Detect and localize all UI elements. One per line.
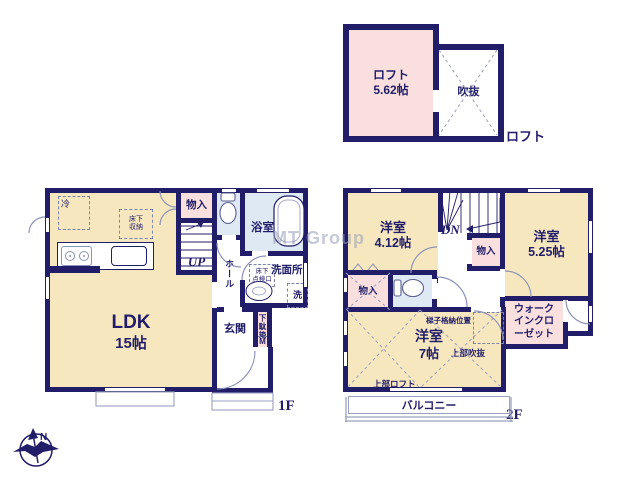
stairs-1f: UP	[176, 218, 217, 275]
bedroom-7-name: 洋室	[396, 328, 462, 346]
window-ldk-left	[45, 276, 50, 300]
refrigerator-label: 冷	[61, 199, 70, 209]
closet-2f-b-label: 物入	[358, 286, 377, 298]
compass-north-label: N	[40, 432, 47, 443]
floor-label-1f: 1F	[278, 398, 295, 415]
window-room7-west-a	[343, 320, 348, 336]
loft-room: ロフト 5.62帖	[343, 24, 439, 142]
bedroom-7: 洋室 7帖 梯子格納位置 上部吹抜 上部ロフト	[343, 307, 506, 392]
loft-void-opening	[433, 90, 439, 112]
loft-room-label: ロフト 5.62帖	[349, 30, 433, 136]
bathroom-label: 浴室	[251, 219, 274, 235]
meter-box: M	[258, 336, 267, 346]
bedroom-412-size: 4.12帖	[375, 236, 412, 252]
entrance-1f: 玄関	[212, 307, 258, 352]
opening-ldk-hall	[212, 282, 217, 308]
refrigerator-space: 冷	[58, 196, 90, 230]
loft-room-size: 5.62帖	[373, 83, 408, 98]
floor-plan-canvas: ロフト 5.62帖 吹抜 ロフト LDK 15帖 冷 床下 収納 物入 UP ホ…	[0, 0, 640, 480]
opening-525-door	[500, 269, 505, 297]
bedroom-525-label: 洋室 5.25帖	[505, 193, 588, 296]
upper-void-note: 上部吹抜	[451, 347, 485, 359]
window-bath-north	[256, 188, 290, 193]
underfloor-hatch: 床下 点検口	[249, 264, 275, 287]
window-toilet-1f	[221, 188, 237, 193]
porch-1f	[212, 347, 273, 393]
loft-room-name: ロフト	[373, 68, 409, 83]
walk-in-closet: ウォークインクローゼット	[500, 296, 568, 349]
hall-1f-label: ホール	[223, 259, 234, 289]
kitchen-half-wall	[45, 266, 100, 273]
window-nook-east	[588, 305, 593, 323]
wic-label-wrap: ウォークインクローゼット	[505, 301, 563, 344]
floor-label-2f: 2F	[506, 407, 523, 424]
ldk-size: 15帖	[115, 335, 147, 354]
opening-ladder-area	[471, 307, 501, 312]
entrance-label: 玄関	[224, 323, 246, 337]
washroom-label: 洗面所	[271, 262, 303, 277]
ladder-position-note: 梯子格納位置	[426, 315, 471, 326]
entry-steps	[96, 392, 273, 410]
window-525-north	[527, 188, 561, 193]
opening-toilet-2f-door	[432, 279, 437, 299]
window-525-east	[588, 220, 593, 254]
opening-hall-entrance	[224, 307, 242, 312]
closet-2f-b-wrap: 物入	[348, 275, 388, 308]
bedroom-525-size: 5.25帖	[528, 245, 565, 261]
opening-front-door	[218, 347, 250, 352]
loft-void-label-wrap: 吹抜	[439, 50, 498, 136]
loft-void-label: 吹抜	[458, 86, 480, 100]
watermark: MT Group	[272, 228, 365, 249]
opening-412-door	[438, 247, 443, 275]
balcony-label: バルコニー	[402, 397, 457, 413]
window-closet-b-west	[343, 277, 348, 293]
washroom-1f: 洗面所 床下 点検口 洗	[240, 251, 308, 308]
closet-2f-a-label: 物入	[476, 246, 495, 258]
entrance-label-wrap: 玄関	[217, 312, 253, 347]
window-room7-west-b	[343, 351, 348, 367]
balcony: バルコニー	[348, 396, 510, 414]
ladder-storage-box	[473, 312, 504, 344]
stairs-up-label: UP	[181, 254, 212, 270]
window-ldk-south	[104, 387, 166, 392]
ldk-name: LDK	[111, 311, 150, 335]
closet-1f-label: 物入	[186, 199, 207, 212]
bedroom-525: 洋室 5.25帖	[500, 188, 593, 301]
opening-closet-2f-a	[467, 240, 472, 264]
closet-2f-a-wrap: 物入	[472, 238, 500, 266]
window-412-north	[370, 188, 402, 193]
hall-1f-label-wrap: ホール	[217, 240, 240, 307]
opening-toilet-1f-door	[222, 235, 236, 240]
closet-1f-label-wrap: 物入	[181, 193, 212, 218]
window-kitchen-door-gap	[45, 217, 50, 233]
loft-void-room: 吹抜	[433, 44, 504, 142]
opening-bath-washroom	[252, 251, 268, 256]
stove	[61, 246, 92, 266]
shoebox-1f: 下駄箱 M	[253, 307, 272, 352]
kitchen-sink	[111, 246, 147, 266]
opening-wic-door	[563, 300, 568, 322]
loft-floor-label: ロフト	[506, 126, 545, 145]
underfloor-storage: 床下 収納	[119, 209, 153, 239]
wic-label: ウォークインクローゼット	[510, 304, 558, 342]
bedroom-525-name: 洋室	[533, 229, 559, 245]
window-washroom-east	[303, 262, 308, 288]
bedroom-412-name: 洋室	[380, 220, 406, 236]
window-room7-balcony	[389, 387, 463, 392]
compass-icon: N	[13, 428, 59, 466]
stairs-down-label: DN	[441, 222, 460, 238]
opening-washroom-door	[240, 256, 245, 280]
